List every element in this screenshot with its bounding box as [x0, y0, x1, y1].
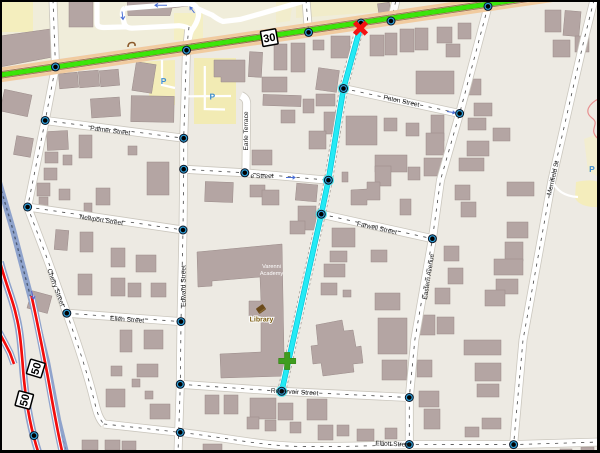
svg-text:P: P: [589, 164, 595, 174]
svg-text:e Street: e Street: [251, 173, 274, 180]
svg-text:P: P: [161, 76, 167, 86]
svg-text:Academy: Academy: [260, 270, 284, 277]
svg-text:30: 30: [262, 32, 276, 46]
svg-text:Earle Terrace: Earle Terrace: [243, 111, 250, 150]
svg-text:Library: Library: [250, 316, 274, 324]
svg-text:Edward Street: Edward Street: [180, 265, 187, 307]
svg-text:P: P: [209, 92, 215, 102]
svg-text:Varenni: Varenni: [262, 263, 281, 270]
